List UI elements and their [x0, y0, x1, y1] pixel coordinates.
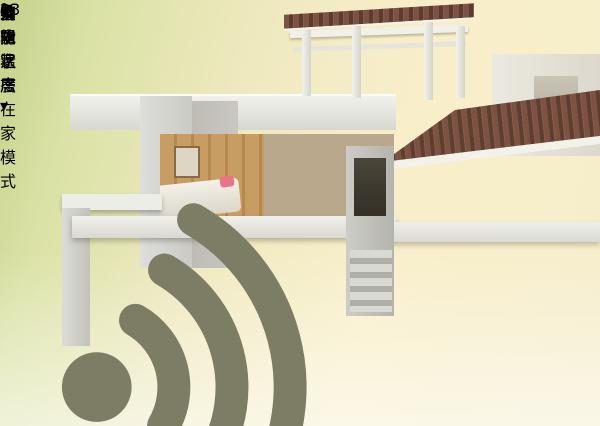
wifi-signal-icon [0, 0, 600, 426]
smart-home-scene: 智能家居 ▾ ≡ 室内温度 23°C ✓ 安防状态 在家模式 ⊞ 情景 [0, 0, 600, 426]
status-value: 在家模式 [0, 100, 16, 191]
